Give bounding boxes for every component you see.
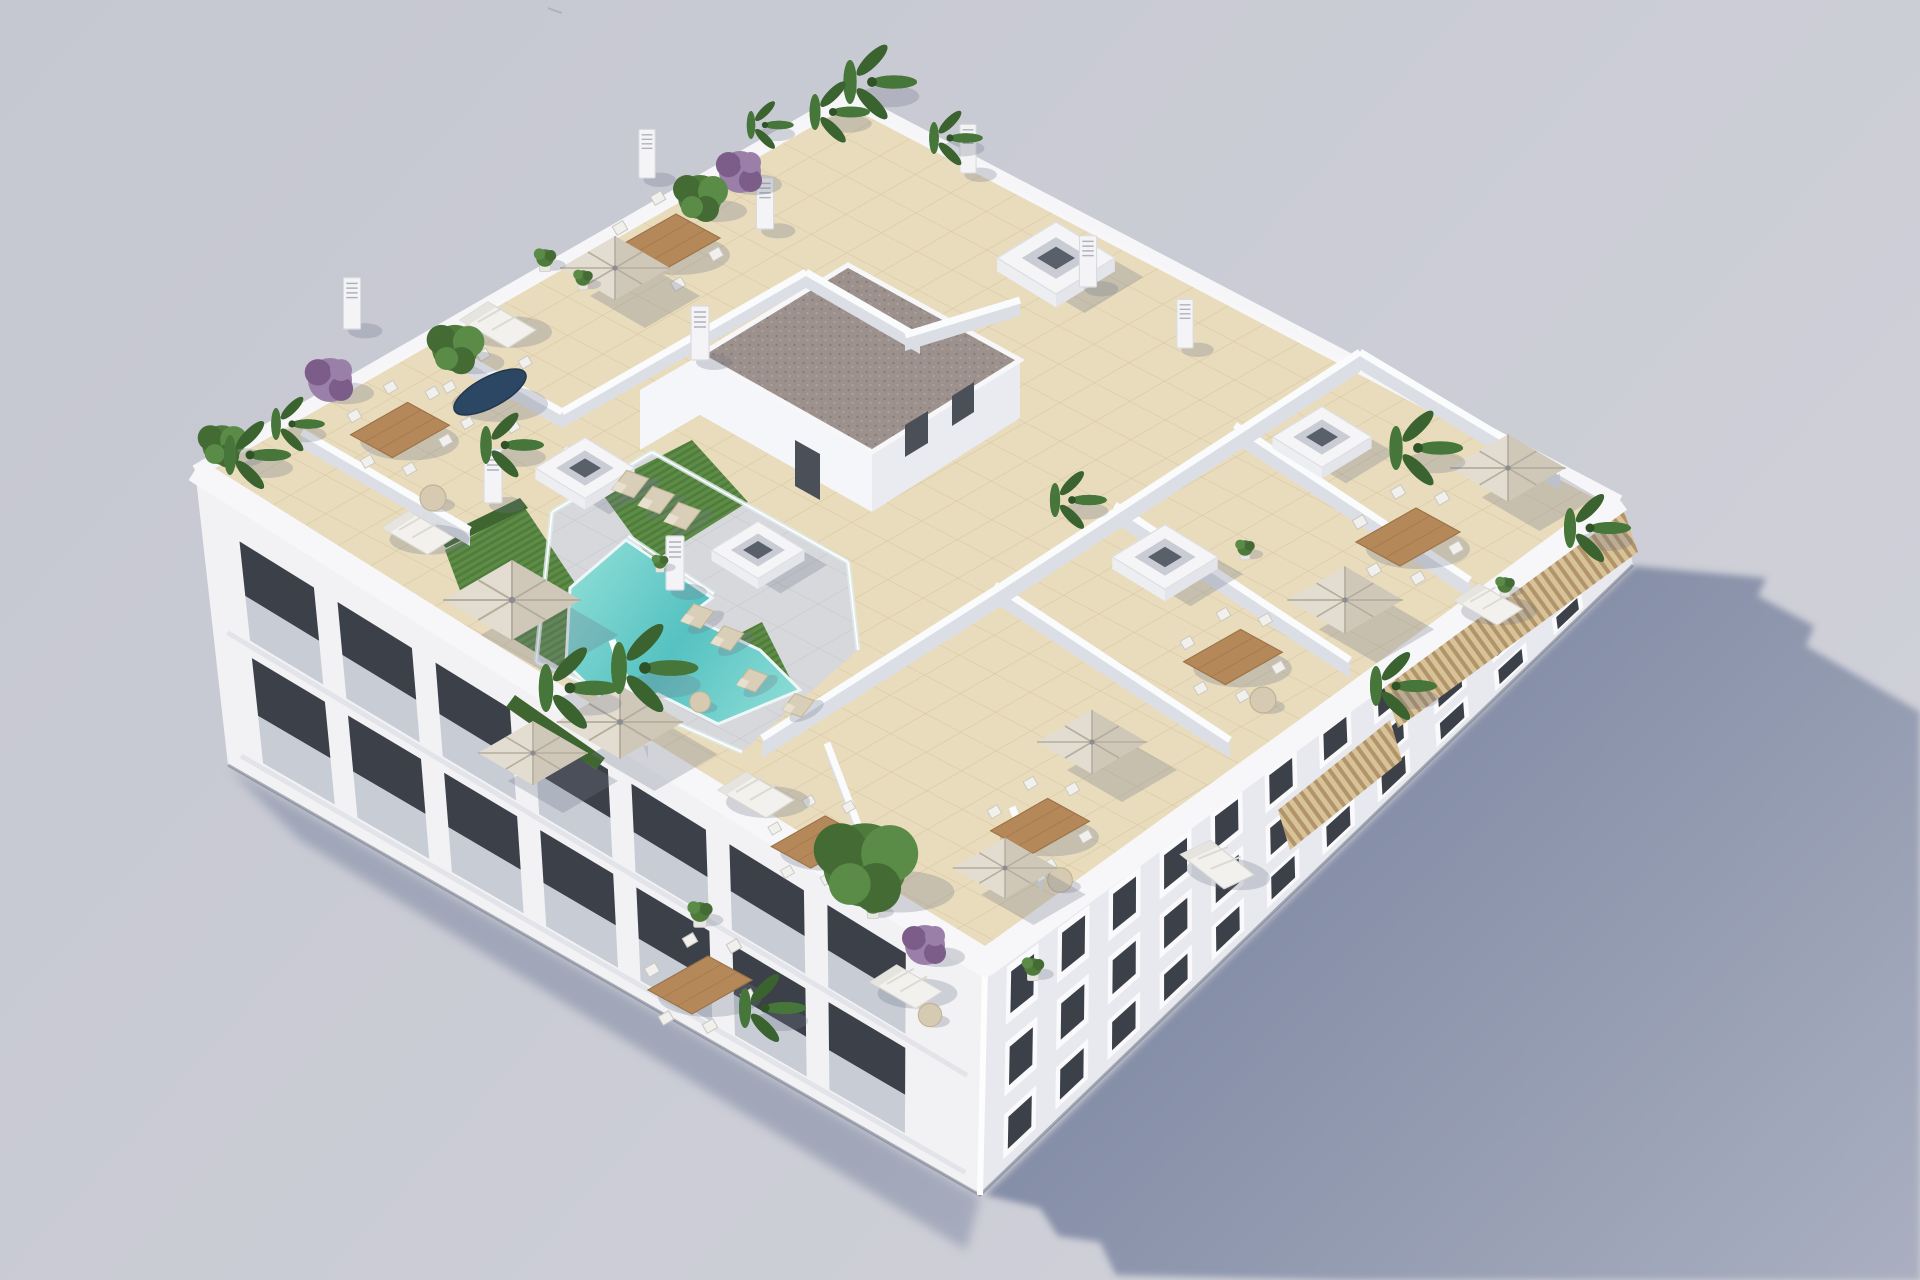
building-render: [0, 0, 1920, 1280]
render-canvas: Aerial 3D architectural render of a whit…: [0, 0, 1920, 1280]
